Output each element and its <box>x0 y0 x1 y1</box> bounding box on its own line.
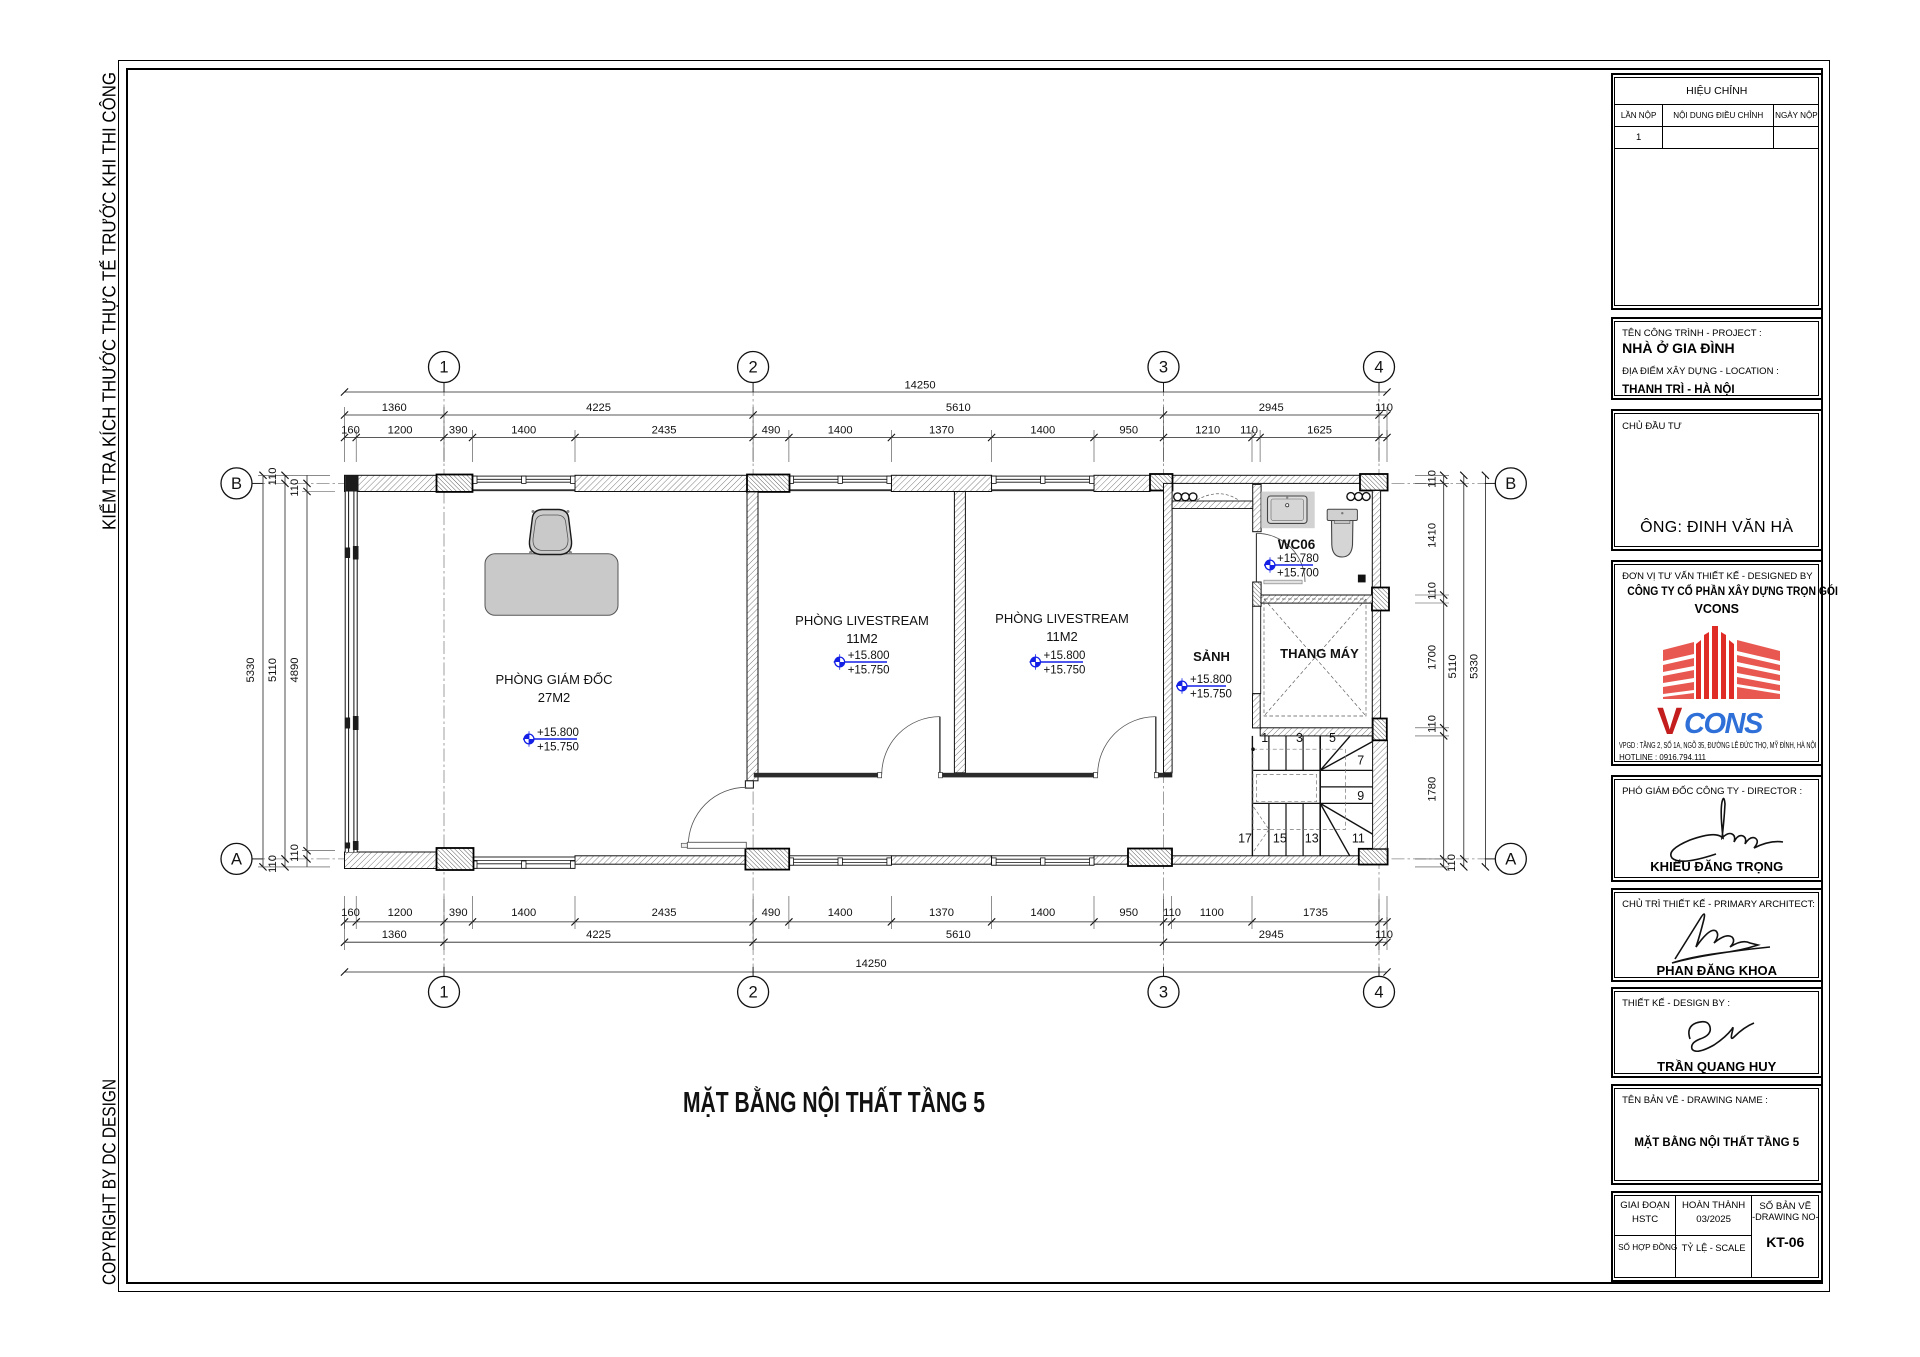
svg-text:1410: 1410 <box>1427 523 1439 548</box>
svg-text:A: A <box>231 850 242 868</box>
svg-text:7: 7 <box>1357 754 1364 768</box>
svg-text:110: 110 <box>1427 715 1439 733</box>
svg-text:490: 490 <box>762 425 781 437</box>
svg-text:1: 1 <box>439 983 448 1001</box>
svg-text:A: A <box>1505 850 1516 868</box>
svg-text:B: B <box>1505 475 1516 493</box>
svg-text:5610: 5610 <box>946 402 971 414</box>
svg-text:MẶT BẰNG NỘI THẤT TẦNG 5: MẶT BẰNG NỘI THẤT TẦNG 5 <box>683 1086 985 1119</box>
svg-text:+15.750: +15.750 <box>537 741 579 753</box>
svg-text:+15.700: +15.700 <box>1277 567 1319 579</box>
svg-text:1200: 1200 <box>388 425 413 437</box>
svg-text:1360: 1360 <box>382 929 407 941</box>
svg-text:4: 4 <box>1374 983 1383 1001</box>
svg-text:3: 3 <box>1159 983 1168 1001</box>
svg-text:PHÒNG LIVESTREAM: PHÒNG LIVESTREAM <box>795 613 929 628</box>
svg-text:4890: 4890 <box>289 658 301 683</box>
svg-text:2: 2 <box>749 359 758 377</box>
svg-text:1625: 1625 <box>1307 425 1332 437</box>
svg-text:5330: 5330 <box>1468 654 1480 679</box>
svg-text:390: 390 <box>449 425 468 437</box>
svg-text:+15.800: +15.800 <box>1190 674 1232 686</box>
svg-text:1780: 1780 <box>1427 777 1439 802</box>
svg-text:1400: 1400 <box>511 907 536 919</box>
svg-text:17: 17 <box>1238 831 1252 845</box>
svg-text:1700: 1700 <box>1427 645 1439 670</box>
svg-text:1400: 1400 <box>511 425 536 437</box>
svg-text:+15.800: +15.800 <box>848 650 890 662</box>
svg-text:11: 11 <box>1352 831 1365 845</box>
svg-text:2435: 2435 <box>652 907 677 919</box>
svg-text:+15.800: +15.800 <box>537 727 579 739</box>
svg-text:B: B <box>231 475 242 493</box>
svg-text:1370: 1370 <box>929 907 954 919</box>
svg-text:13: 13 <box>1305 831 1319 845</box>
svg-text:5330: 5330 <box>245 658 257 683</box>
svg-text:4225: 4225 <box>586 929 611 941</box>
svg-text:950: 950 <box>1119 907 1138 919</box>
svg-text:1370: 1370 <box>929 425 954 437</box>
svg-text:3: 3 <box>1159 359 1168 377</box>
svg-text:490: 490 <box>762 907 781 919</box>
svg-text:THANG MÁY: THANG MÁY <box>1280 646 1359 661</box>
svg-text:1400: 1400 <box>1030 425 1055 437</box>
svg-text:+15.750: +15.750 <box>1190 688 1232 700</box>
svg-text:14250: 14250 <box>855 958 886 970</box>
svg-text:V: V <box>1657 701 1683 738</box>
svg-text:+15.800: +15.800 <box>1044 650 1086 662</box>
svg-text:+15.780: +15.780 <box>1277 553 1319 565</box>
svg-text:KIỂM TRA KÍCH THƯỚC THỰC TẾ TR: KIỂM TRA KÍCH THƯỚC THỰC TẾ TRƯỚC KHI TH… <box>99 72 120 530</box>
svg-text:110: 110 <box>1427 470 1439 488</box>
svg-text:15: 15 <box>1273 831 1287 845</box>
svg-text:5610: 5610 <box>946 929 971 941</box>
svg-text:1400: 1400 <box>828 425 853 437</box>
svg-text:9: 9 <box>1357 789 1364 803</box>
svg-text:11M2: 11M2 <box>846 631 878 646</box>
svg-text:1100: 1100 <box>1200 907 1224 919</box>
svg-text:110: 110 <box>289 479 301 497</box>
svg-text:4225: 4225 <box>586 402 611 414</box>
svg-text:160: 160 <box>341 425 360 437</box>
svg-text:5: 5 <box>1329 731 1336 745</box>
svg-text:2435: 2435 <box>652 425 677 437</box>
svg-text:1: 1 <box>439 359 448 377</box>
svg-text:110: 110 <box>1375 402 1393 414</box>
svg-text:2945: 2945 <box>1259 929 1284 941</box>
svg-text:SẢNH: SẢNH <box>1193 649 1230 664</box>
svg-text:3: 3 <box>1296 731 1303 745</box>
svg-text:PHÒNG LIVESTREAM: PHÒNG LIVESTREAM <box>995 611 1129 626</box>
svg-text:2: 2 <box>749 983 758 1001</box>
svg-text:110: 110 <box>1446 854 1458 872</box>
svg-text:1735: 1735 <box>1303 907 1328 919</box>
svg-text:1: 1 <box>1261 731 1268 745</box>
svg-text:110: 110 <box>1240 425 1258 437</box>
svg-text:11M2: 11M2 <box>1046 629 1078 644</box>
svg-text:390: 390 <box>449 907 468 919</box>
svg-text:PHÒNG GIÁM ĐỐC: PHÒNG GIÁM ĐỐC <box>495 672 612 687</box>
svg-text:950: 950 <box>1119 425 1138 437</box>
svg-text:4: 4 <box>1374 359 1383 377</box>
svg-text:110: 110 <box>1375 929 1393 941</box>
svg-text:27M2: 27M2 <box>538 690 571 705</box>
svg-text:110: 110 <box>267 855 279 873</box>
svg-text:160: 160 <box>341 907 360 919</box>
svg-text:1360: 1360 <box>382 402 407 414</box>
svg-text:14250: 14250 <box>904 380 935 392</box>
svg-text:CONS: CONS <box>1684 708 1764 738</box>
svg-text:1400: 1400 <box>828 907 853 919</box>
svg-text:2945: 2945 <box>1259 402 1284 414</box>
svg-text:110: 110 <box>1163 907 1181 919</box>
svg-text:5110: 5110 <box>1447 654 1459 678</box>
svg-text:110: 110 <box>267 468 279 486</box>
svg-text:WC06: WC06 <box>1278 537 1316 552</box>
svg-text:1210: 1210 <box>1195 425 1220 437</box>
svg-text:110: 110 <box>1427 582 1439 600</box>
svg-text:+15.750: +15.750 <box>848 664 890 676</box>
svg-text:1200: 1200 <box>388 907 413 919</box>
svg-text:110: 110 <box>289 844 301 862</box>
svg-text:5110: 5110 <box>267 658 279 682</box>
svg-text:COPYRIGHT BY DC DESIGN: COPYRIGHT BY DC DESIGN <box>99 1079 120 1285</box>
svg-text:1400: 1400 <box>1030 907 1055 919</box>
svg-text:+15.750: +15.750 <box>1044 664 1086 676</box>
